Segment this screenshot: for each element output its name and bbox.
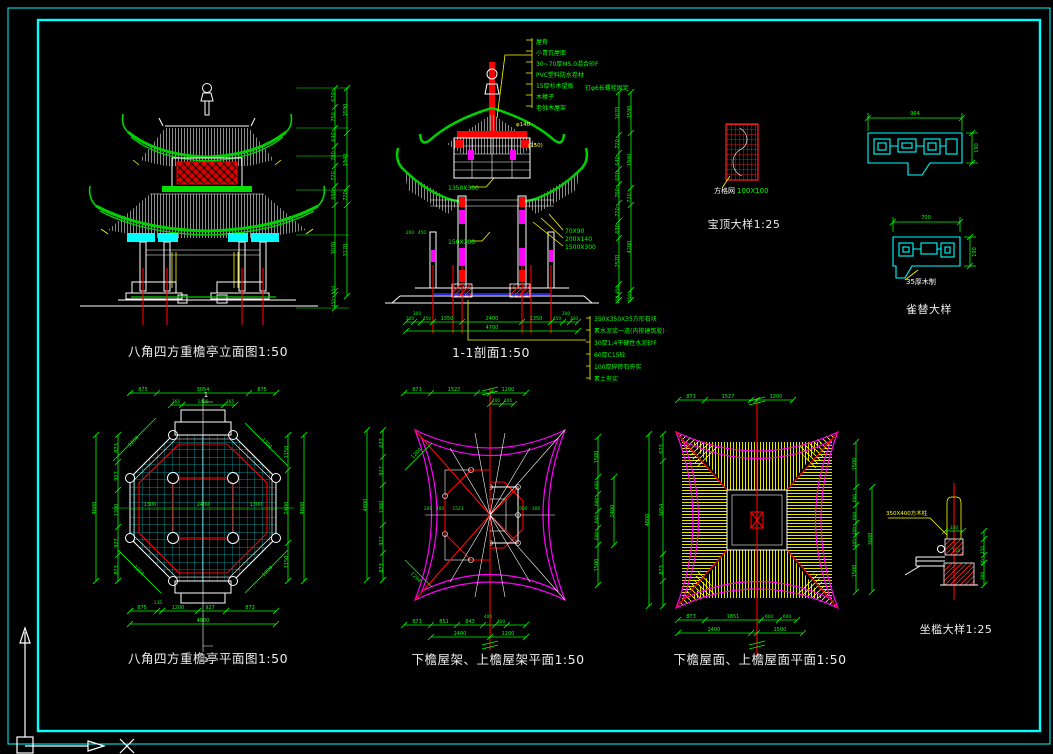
- dim-text: 720: [343, 191, 349, 201]
- dim-text: 1300: [114, 504, 120, 517]
- baoding-detail[interactable]: 方格网 100X100 宝顶大样1:25: [708, 124, 781, 231]
- zuokan-detail[interactable]: 330 110 450 90 300 350X400方木柱 坐槛大样1:25: [886, 483, 992, 636]
- dim-text: 927: [205, 605, 215, 611]
- dim-text: 2400: [708, 627, 721, 633]
- dim-text: 300: [532, 506, 540, 512]
- ucs-icon: [17, 628, 134, 753]
- dim-text: 1500: [852, 565, 858, 578]
- dim-text: 1200: [502, 631, 515, 637]
- base-platform: [80, 268, 318, 325]
- dim-text: 600: [594, 532, 600, 540]
- zuokan-leader: [888, 518, 947, 535]
- dim-text: 450: [418, 230, 426, 236]
- dim-text: 400: [484, 614, 492, 620]
- dim-text: 300: [413, 311, 421, 317]
- dim-text: 110: [952, 548, 960, 554]
- callout-text: 素土夯实: [594, 375, 618, 383]
- dim-text: 1500: [852, 458, 858, 471]
- roof-frame-title: 下檐屋架、上檐屋架平面1:50: [411, 652, 584, 667]
- callout-text: 屋脊: [536, 38, 548, 46]
- dim-text: 4800: [363, 499, 369, 512]
- dim-text: 1400: [198, 399, 209, 405]
- dim-text: 1204: [261, 565, 274, 578]
- label-yellow: (150): [528, 143, 543, 149]
- callout-note: 钉φ6长螺栓固定: [585, 84, 629, 92]
- dim-text: 200: [406, 230, 414, 236]
- zuokan-title: 坐槛大样1:25: [920, 622, 993, 636]
- elevation-drawing[interactable]: 670 750 640 700 720 690 3070 150 450 159…: [80, 84, 350, 360]
- baoding-label-value: 100X100: [737, 187, 769, 195]
- dim-text: 450: [331, 299, 337, 307]
- dim-text: 1150: [284, 446, 290, 459]
- roof-surface-title: 下檐屋面、上檐屋面平面1:50: [673, 652, 846, 667]
- roof-surface-drawing[interactable]: 873 1527 1200 673 3054 873 4800 1500 600…: [645, 394, 875, 667]
- dim-text: 720: [615, 207, 621, 217]
- dim-text: 1590: [627, 106, 633, 119]
- dim-text: 400: [497, 619, 505, 625]
- dim-text: 673: [659, 444, 665, 454]
- dim-text: 3170: [343, 244, 349, 257]
- dim-text: 150: [615, 296, 621, 304]
- dim-text: 400: [436, 506, 444, 512]
- dim-text: 365: [172, 399, 180, 405]
- callout-text: 老戗木屋架: [536, 104, 566, 112]
- dim-text: 600: [765, 614, 773, 620]
- dim-text: 1670: [615, 107, 621, 120]
- plan-title: 八角四方重檐亭平面图1:50: [128, 651, 288, 666]
- dim-text: 927: [379, 466, 385, 476]
- dim-text: 2400: [610, 505, 616, 518]
- finial: [201, 84, 213, 116]
- callout-text: 30~70厚M5.0混合砂F: [536, 60, 599, 68]
- queti-label: 35厚木制: [906, 277, 936, 286]
- section-dim-chain-right: 1670 720 640 600 760 720 690 2570 450 15…: [615, 89, 634, 304]
- dim-text: 600: [783, 614, 791, 620]
- label-yellow: φ140: [516, 122, 531, 128]
- dim-text: 720: [331, 171, 337, 181]
- dim-text: 700: [921, 215, 931, 221]
- dim-text: 1350: [441, 316, 454, 322]
- section-drawing[interactable]: 屋脊 小青瓦屋面 30~70厚M5.0混合砂F PVC塑料防水卷材 15厚杉木望…: [385, 38, 665, 383]
- dim-text: 843: [465, 619, 475, 625]
- dim-text: 190: [972, 247, 978, 257]
- dim-text: 875: [257, 387, 267, 393]
- callout-text: 30厚1:4干硬性水泥砂F: [594, 339, 657, 347]
- dim-text: 1200: [502, 387, 515, 393]
- dim-text: 150: [331, 286, 337, 294]
- dim-text: 750: [331, 112, 337, 122]
- dim-text: 927: [114, 471, 120, 481]
- dim-text: 190: [974, 143, 980, 153]
- dim-text: 600: [615, 171, 621, 181]
- dim-text: 450: [553, 316, 561, 322]
- dim-text: 90: [980, 559, 986, 565]
- callout-text: 小青瓦屋面: [536, 49, 566, 57]
- dim-text: 3054: [659, 504, 665, 517]
- label-green: 150X300: [448, 239, 475, 246]
- zuokan-blocks: [905, 539, 978, 585]
- dim-text: 3070: [331, 242, 337, 255]
- dim-text: 851: [439, 619, 449, 625]
- dim-text: 873: [412, 619, 422, 625]
- queti-bracket-1: [868, 133, 962, 175]
- dim-text: 1204: [260, 437, 273, 450]
- queti-title: 雀替大样: [906, 302, 952, 316]
- dim-text: 1500: [774, 627, 787, 633]
- queti-detail[interactable]: 964 190 700 190 35厚木制 雀替大样: [865, 111, 980, 316]
- label-green: 1500X300: [565, 244, 596, 251]
- dim-text: 873: [245, 605, 255, 611]
- label-green: 200X140: [565, 236, 592, 243]
- dim-text: 964: [910, 111, 920, 117]
- dim-text: 1590: [343, 104, 349, 117]
- dim-text: 875: [138, 387, 148, 393]
- dim-text: 873: [659, 565, 665, 575]
- zuokan-label: 350X400方木柱: [886, 509, 928, 517]
- dim-text: 873: [379, 563, 385, 573]
- dim-text: 1204: [127, 435, 140, 448]
- plan-drawing[interactable]: 1 1 875 3054 875 365 1400 365 873 927 13…: [92, 387, 307, 666]
- dim-text: 3054: [197, 387, 210, 393]
- dim-text: 1150: [284, 556, 290, 569]
- dim-text: 450: [423, 316, 431, 322]
- dim-text: 300: [980, 572, 986, 580]
- dim-text: 4800: [300, 502, 306, 515]
- dim-text: 600: [852, 512, 858, 520]
- dim-text: 720: [627, 193, 633, 203]
- lower-roof: [90, 186, 325, 238]
- dim-text: 450: [615, 286, 621, 294]
- dim-text: 873: [114, 565, 120, 575]
- dim-text: 600: [594, 498, 600, 506]
- baoding-label: 方格网: [714, 186, 735, 195]
- dim-text: 365: [226, 399, 234, 405]
- section-dims-bottom: 300 300 450 1350 2400 1350 450 300 300 4…: [403, 311, 581, 334]
- queti-dims-2: 700 190: [890, 215, 978, 269]
- dim-text: 4800: [92, 502, 98, 515]
- callout-text: 木椽子: [536, 93, 554, 101]
- dim-text: 600: [852, 494, 858, 502]
- dim-text: 600: [594, 515, 600, 523]
- dim-text: 2400: [486, 316, 499, 322]
- callout-text: 350X350X35方形石块: [594, 315, 657, 323]
- dim-text: 1300: [144, 502, 157, 508]
- dim-text: 640: [331, 132, 337, 142]
- cad-canvas[interactable]: 670 750 640 700 720 690 3070 150 450 159…: [0, 0, 1053, 754]
- dim-text: 600: [594, 481, 600, 489]
- dim-text: 1300: [250, 502, 263, 508]
- dim-text: 873: [686, 614, 696, 620]
- callout-text: 100厚碎砖石夯实: [594, 363, 641, 371]
- dim-text: 300: [570, 316, 578, 322]
- dim-text: 640: [615, 156, 621, 166]
- dim-text: 1500: [594, 451, 600, 464]
- baoding-grid: [726, 124, 758, 180]
- dim-text: 1000: [517, 506, 528, 512]
- dim-text: 1527: [722, 394, 735, 400]
- section-title: 1-1剖面1:50: [452, 345, 530, 360]
- callout-text: 素水泥浆一道(内掺建筑胶): [594, 327, 665, 335]
- dim-text: 1200: [770, 394, 783, 400]
- dim-text: 400: [492, 398, 500, 404]
- dim-text: 1851: [727, 614, 740, 620]
- dim-text: 1294: [409, 571, 422, 584]
- dim-text: 873: [114, 443, 120, 453]
- callout-text: 15厚杉木望板: [536, 82, 574, 90]
- dim-text: 690: [331, 190, 337, 200]
- dim-text: 873: [686, 394, 696, 400]
- label-green: 70X90: [565, 228, 585, 235]
- dim-text: 4800: [197, 618, 210, 624]
- dim-text: 1500: [594, 559, 600, 572]
- dim-text: 2400: [284, 502, 290, 515]
- label-green: 1350X300: [448, 185, 479, 192]
- dim-text: 1200: [172, 605, 185, 611]
- dim-text: 2400: [454, 631, 467, 637]
- callout-text: PVC塑料防水卷材: [536, 71, 584, 79]
- dim-text: 3600: [868, 533, 874, 546]
- dim-text: 2570: [615, 255, 621, 268]
- queti-bracket-2: [893, 237, 960, 278]
- dim-text: 673: [379, 438, 385, 448]
- dim-text: 400: [852, 539, 858, 547]
- dim-text: 400: [852, 527, 858, 535]
- dim-text: 1940: [343, 154, 349, 167]
- dim-text: 760: [615, 188, 621, 198]
- dim-text: 400: [504, 398, 512, 404]
- dim-text: 4200: [627, 241, 633, 254]
- section-callouts-top: 屋脊 小青瓦屋面 30~70厚M5.0混合砂F PVC塑料防水卷材 15厚杉木望…: [497, 38, 629, 118]
- dim-text: 927: [379, 536, 385, 546]
- dim-text: 450: [627, 294, 633, 302]
- roof-frame-drawing[interactable]: 873 1527 1200 400 400 673 927 1300 927 8…: [363, 387, 617, 667]
- dim-text: 875: [137, 605, 147, 611]
- callout-text: 60厚C15砼: [594, 351, 625, 359]
- dim-text: 4700: [486, 325, 499, 331]
- dim-text: 135: [154, 600, 162, 606]
- section-foundation: [385, 265, 599, 333]
- dim-text: 1523: [453, 506, 464, 512]
- dim-text: 873: [412, 387, 422, 393]
- dim-text: 1300: [379, 501, 385, 514]
- dim-text: 4800: [645, 514, 651, 527]
- dim-text: 670: [331, 92, 337, 102]
- elevation-title: 八角四方重檐亭立面图1:50: [128, 344, 288, 359]
- dim-text: 2400: [197, 502, 210, 508]
- dim-text: 1350: [530, 316, 543, 322]
- dim-text: 1940: [627, 154, 633, 167]
- dim-text: 450: [980, 546, 986, 554]
- dim-text: 700: [331, 151, 337, 161]
- dim-text: 330: [950, 525, 958, 531]
- dim-text: 690: [615, 224, 621, 234]
- dim-text: 200: [424, 506, 432, 512]
- dim-text: 1527: [448, 387, 461, 393]
- baoding-title: 宝顶大样1:25: [708, 217, 781, 231]
- dim-text: 720: [615, 139, 621, 149]
- dim-text: 927: [114, 538, 120, 548]
